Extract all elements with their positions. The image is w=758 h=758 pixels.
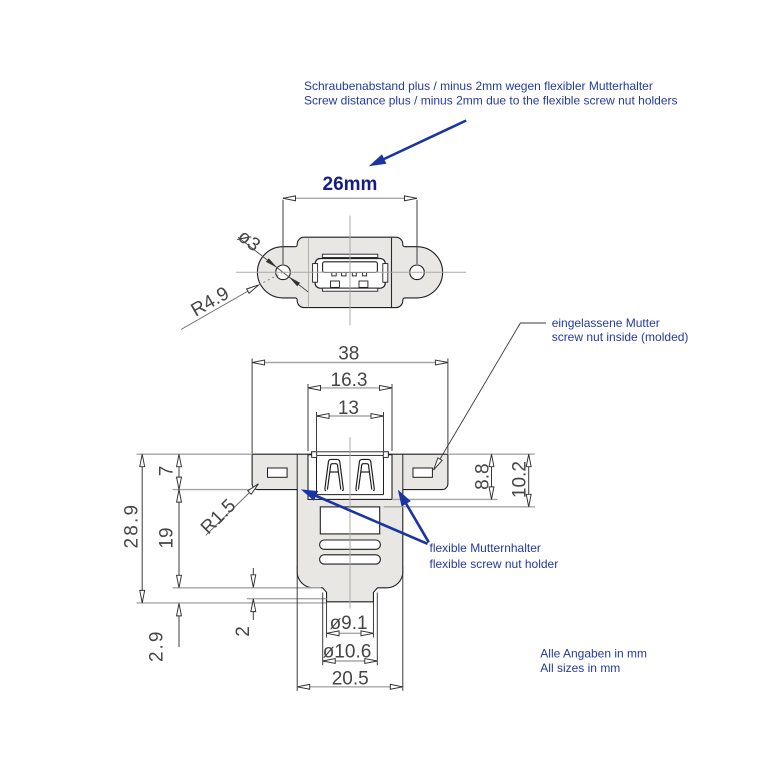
svg-text:All sizes in mm: All sizes in mm xyxy=(540,661,620,675)
svg-text:28.9: 28.9 xyxy=(122,503,143,549)
svg-text:10.2: 10.2 xyxy=(509,461,530,498)
svg-text:ø3: ø3 xyxy=(233,226,263,256)
svg-text:2.9: 2.9 xyxy=(147,630,168,662)
svg-text:16.3: 16.3 xyxy=(331,370,368,391)
svg-text:7: 7 xyxy=(156,466,177,477)
svg-text:26mm: 26mm xyxy=(323,174,378,195)
svg-text:screw nut inside (molded): screw nut inside (molded) xyxy=(552,330,689,344)
svg-text:R4.9: R4.9 xyxy=(188,283,233,321)
svg-text:flexible Mutternhalter: flexible Mutternhalter xyxy=(430,541,541,555)
svg-text:Screw distance plus / minus 2m: Screw distance plus / minus 2mm due to t… xyxy=(304,93,678,107)
svg-text:8.8: 8.8 xyxy=(472,463,493,489)
svg-text:13: 13 xyxy=(338,398,359,419)
svg-text:Alle Angaben in mm: Alle Angaben in mm xyxy=(540,647,647,661)
svg-text:ø10.6: ø10.6 xyxy=(323,642,372,663)
svg-text:flexible screw nut holder: flexible screw nut holder xyxy=(430,557,559,571)
svg-text:R1.5: R1.5 xyxy=(197,495,240,538)
svg-text:38: 38 xyxy=(338,344,359,365)
svg-text:19: 19 xyxy=(156,527,177,548)
svg-text:ø9.1: ø9.1 xyxy=(330,613,368,634)
svg-text:Schraubenabstand plus / minus: Schraubenabstand plus / minus 2mm wegen … xyxy=(304,79,653,93)
svg-text:eingelassene Mutter: eingelassene Mutter xyxy=(552,316,660,330)
svg-text:2: 2 xyxy=(233,626,254,637)
svg-text:20.5: 20.5 xyxy=(332,669,369,690)
